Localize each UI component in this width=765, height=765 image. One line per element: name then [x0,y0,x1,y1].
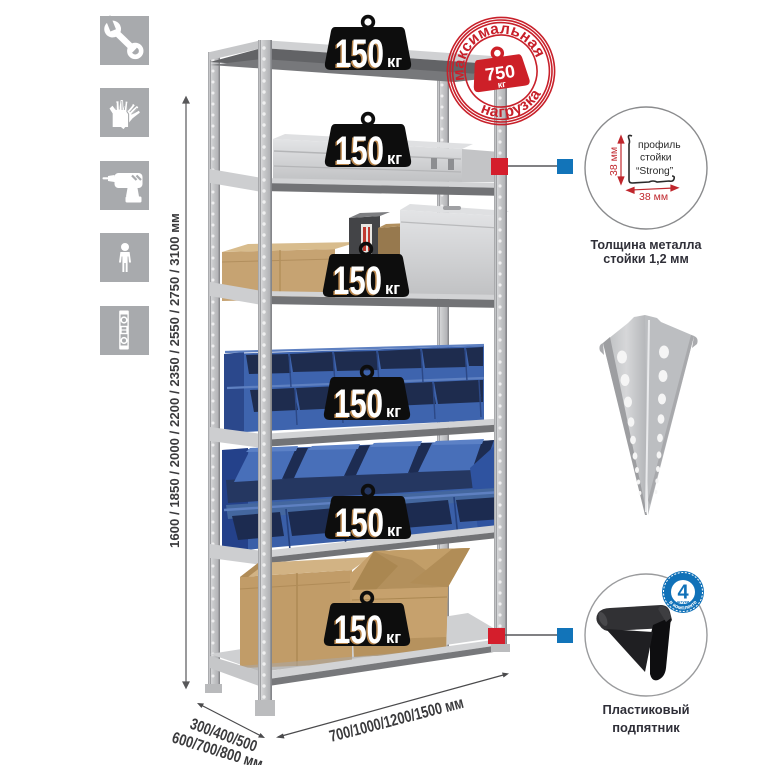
svg-text:профиль: профиль [638,139,681,151]
svg-text:кг: кг [387,53,402,71]
svg-text:38 мм: 38 мм [639,191,668,203]
svg-text:150: 150 [335,129,384,173]
svg-text:150: 150 [335,32,384,76]
svg-text:подпятник: подпятник [612,720,680,735]
svg-text:“Strong”: “Strong” [636,166,674,177]
svg-text:Толщина металла: Толщина металла [590,238,702,252]
svg-text:штуки: штуки [677,599,690,604]
svg-text:1600 / 1850 / 2000 / 2200 / 23: 1600 / 1850 / 2000 / 2200 / 2350 / 2550 … [167,213,182,548]
svg-text:кг: кг [387,150,402,168]
svg-text:150: 150 [335,501,384,545]
svg-text:Пластиковый: Пластиковый [602,702,689,717]
svg-text:кг: кг [387,522,402,540]
svg-text:кг: кг [386,629,401,647]
svg-text:150: 150 [334,608,383,652]
svg-text:700/1000/1200/1500 мм: 700/1000/1200/1500 мм [327,694,465,746]
svg-text:150: 150 [334,382,383,426]
svg-text:стойки: стойки [640,153,672,164]
svg-text:кг: кг [386,403,401,421]
svg-text:кг: кг [385,280,400,298]
svg-text:38 мм: 38 мм [608,147,620,176]
svg-text:150: 150 [333,259,382,303]
svg-text:кг: кг [497,79,507,90]
svg-text:стойки 1,2 мм: стойки 1,2 мм [603,252,689,266]
